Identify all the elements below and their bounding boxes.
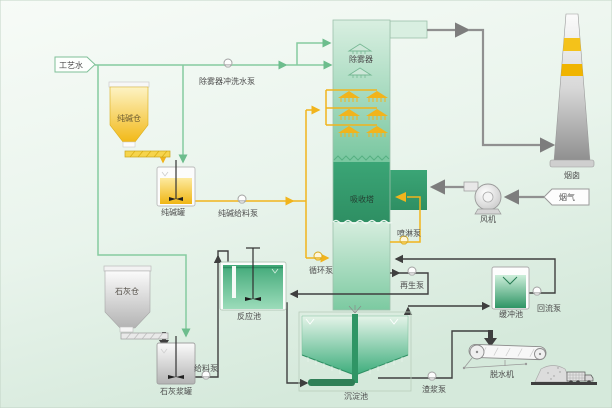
soda-silo-label: 纯碱仓 — [117, 113, 141, 123]
absorber-label: 吸收塔 — [350, 194, 374, 204]
return-pump-icon — [533, 287, 541, 295]
process-flow-diagram: 工艺水 除雾器 吸收塔 — [0, 0, 612, 408]
flue-gas-label: 烟气 — [559, 192, 575, 202]
regen-pump-icon — [408, 267, 416, 275]
tower-absorption-section — [333, 162, 390, 222]
lime-feed-pump-label: 给料泵 — [194, 363, 218, 373]
slag-pump-label: 渣浆泵 — [422, 384, 446, 394]
fan-label: 风机 — [480, 214, 496, 224]
soda-feed-pump-label: 纯碱给料泵 — [218, 208, 258, 218]
lime-slurry-tank: 石灰浆罐 — [157, 336, 195, 396]
soda-feed-pump-icon — [238, 195, 246, 203]
slag-pump-icon — [428, 372, 436, 380]
chimney-label: 烟囱 — [564, 170, 580, 180]
tower-upper-section — [333, 20, 390, 162]
soda-feeder — [125, 151, 170, 157]
tower-sump — [333, 222, 390, 310]
tower-outlet-duct — [390, 21, 427, 38]
soda-tank-label: 纯碱罐 — [161, 207, 185, 217]
circulation-pump-label: 循环泵 — [309, 265, 333, 275]
diagram-canvas: 工艺水 除雾器 吸收塔 — [0, 0, 612, 408]
regen-pump-label: 再生泵 — [400, 280, 424, 290]
lime-silo-label: 石灰仓 — [115, 286, 139, 296]
reaction-pool-label: 反应池 — [237, 311, 261, 321]
sedimentation-pool-label: 沉淀池 — [344, 391, 368, 401]
flue-gas-tag: 烟气 — [544, 189, 589, 205]
demister-flush-pump-icon — [224, 59, 232, 67]
process-water-tag: 工艺水 — [55, 57, 95, 72]
tower-inlet-duct — [390, 170, 427, 210]
demister-flush-pump-label: 除雾器冲洗水泵 — [199, 76, 255, 86]
spray-pump-label: 喷淋泵 — [397, 228, 421, 238]
return-pump-label: 回流泵 — [537, 303, 561, 313]
process-water-label: 工艺水 — [59, 60, 83, 70]
lime-feeder — [121, 333, 168, 339]
dewatering-machine-label: 脱水机 — [490, 369, 514, 379]
lime-slurry-tank-label: 石灰浆罐 — [160, 386, 192, 396]
ground-base — [531, 382, 597, 385]
demister-label: 除雾器 — [349, 54, 373, 64]
buffer-pool-label: 缓冲池 — [499, 309, 523, 319]
circulation-pump-icon — [314, 252, 322, 260]
